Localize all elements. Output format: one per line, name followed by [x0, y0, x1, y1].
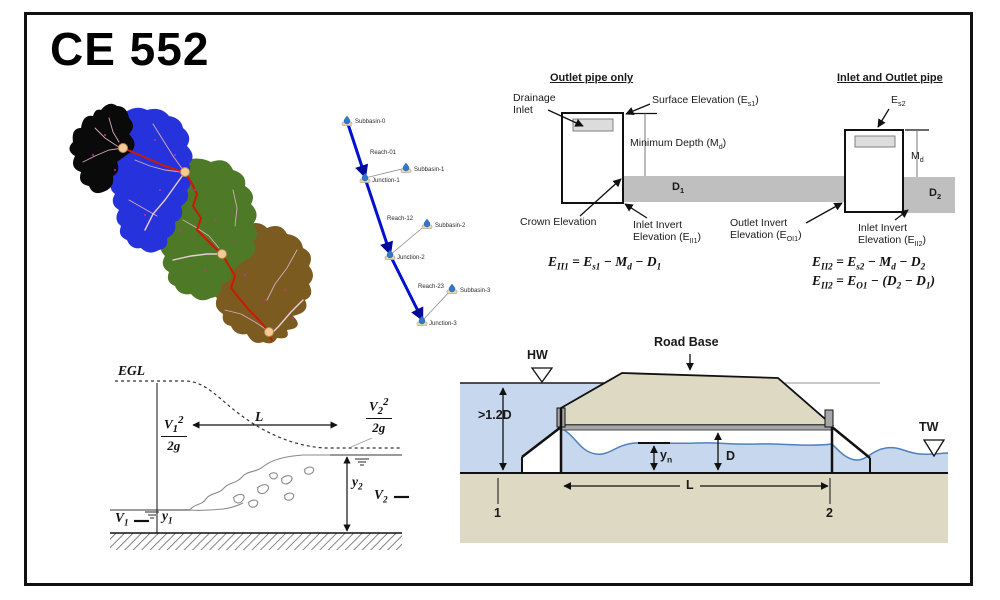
- y2-label: y2: [352, 474, 363, 492]
- es2-label: Es2: [891, 94, 906, 109]
- watershed-map: [65, 100, 315, 350]
- inlet-grate-right: [855, 136, 895, 147]
- culvert-water: [561, 428, 832, 473]
- subbasin3-label: Subbasin-3: [460, 288, 491, 294]
- inlet-invert2-label: Inlet InvertElevation (EII2): [858, 222, 926, 249]
- channel-bed-hatch: [110, 533, 402, 550]
- hms-schematic: Subbasin-0 Reach-01 Junction-1 Subbasin-…: [330, 108, 520, 338]
- inlet-grate-left: [573, 119, 613, 131]
- hw-label: HW: [527, 348, 548, 363]
- outlet-invert-label: Outlet InvertElevation (EOI1): [730, 217, 802, 244]
- yn-label: yn: [660, 448, 672, 465]
- equation-eii1: EII1 = Es1 − Md − D1: [548, 254, 661, 272]
- d-label: D: [726, 449, 735, 464]
- es2-arrow: [878, 109, 889, 127]
- subbasin2-label: Subbasin-2: [435, 223, 466, 229]
- culvert-diagram: HW Road Base >1.2D yn D L 1 2 TW: [458, 332, 950, 547]
- culvert-length-label: L: [686, 478, 694, 493]
- tw-label: TW: [919, 420, 938, 435]
- bridge-deck: [561, 425, 832, 430]
- reach01-label: Reach-01: [370, 150, 397, 156]
- drainage-inlet-label: DrainageInlet: [513, 92, 556, 117]
- drainage-inlet-diagram: Outlet pipe only DrainageInlet Surface E…: [505, 68, 965, 303]
- downstream-headwall: [825, 410, 833, 427]
- road-base-label: Road Base: [654, 335, 719, 350]
- d2-label: D2: [929, 187, 941, 202]
- subbasin0-label: Subbasin-0: [355, 119, 386, 125]
- outlet-pipe-only-title: Outlet pipe only: [550, 72, 633, 85]
- equation-eii2-a: EII2 = Es2 − Md − D2: [812, 254, 925, 272]
- outlet-invert-arrow: [806, 203, 842, 223]
- egl-label: EGL: [118, 363, 145, 379]
- water-surface-symbol-right: [355, 459, 369, 465]
- subbasin3-icon: [447, 284, 457, 294]
- d1-label: D1: [672, 181, 684, 196]
- subbasin0-icon: [342, 116, 352, 126]
- section2-label: 2: [826, 506, 833, 521]
- junction3-label: Junction-3: [429, 321, 457, 327]
- equation-eii2-b: EII2 = EO1 − (D2 − D1): [812, 273, 935, 291]
- hw-level-triangle: [532, 368, 552, 382]
- md2-label: Md: [911, 150, 924, 165]
- junction2-icon: [385, 250, 395, 260]
- subbasin2-icon: [422, 219, 432, 229]
- reach23-label: Reach-23: [418, 284, 445, 290]
- y1-label: y1: [162, 508, 173, 526]
- jump-length-label: L: [255, 409, 263, 425]
- v2-leader-line: [351, 438, 372, 447]
- slide-canvas: CE 552: [0, 0, 1000, 600]
- inlet-invert1-label: Inlet InvertElevation (EII1): [633, 219, 701, 246]
- hydraulic-jump-diagram: EGL V12 2g L V22 2g y2 V2 V1 y1: [85, 360, 415, 560]
- junction1-label: Junction-1: [372, 178, 400, 184]
- subbasin1-label: Subbasin-1: [414, 167, 445, 173]
- pipe-d1: [623, 176, 845, 202]
- v1-head-fraction: V12 2g: [161, 414, 187, 454]
- minimum-depth-label: Minimum Depth (Md): [630, 137, 726, 152]
- headwater-depth-label: >1.2D: [478, 408, 512, 423]
- junction1-icon: [360, 173, 370, 183]
- surface-elev-arrow: [626, 104, 650, 114]
- jump-roller: [190, 455, 330, 510]
- section1-label: 1: [494, 506, 501, 521]
- surface-elevation-label: Surface Elevation (Es1): [652, 94, 759, 109]
- v2-head-fraction: V22 2g: [366, 396, 392, 436]
- junction2-label: Junction-2: [397, 255, 425, 261]
- v2-label: V2: [374, 487, 388, 505]
- reach12-label: Reach-12: [387, 216, 414, 222]
- inlet-and-outlet-pipe-title: Inlet and Outlet pipe: [837, 72, 943, 85]
- v1-label: V1: [115, 510, 129, 528]
- inlet-invert1-arrow: [625, 204, 647, 218]
- slide-title: CE 552: [50, 22, 209, 76]
- crown-elevation-label: Crown Elevation: [520, 216, 596, 228]
- subbasin-connectors: [365, 168, 452, 321]
- ground: [460, 473, 948, 543]
- subbasin1-icon: [401, 163, 411, 173]
- road-embankment: [561, 373, 832, 425]
